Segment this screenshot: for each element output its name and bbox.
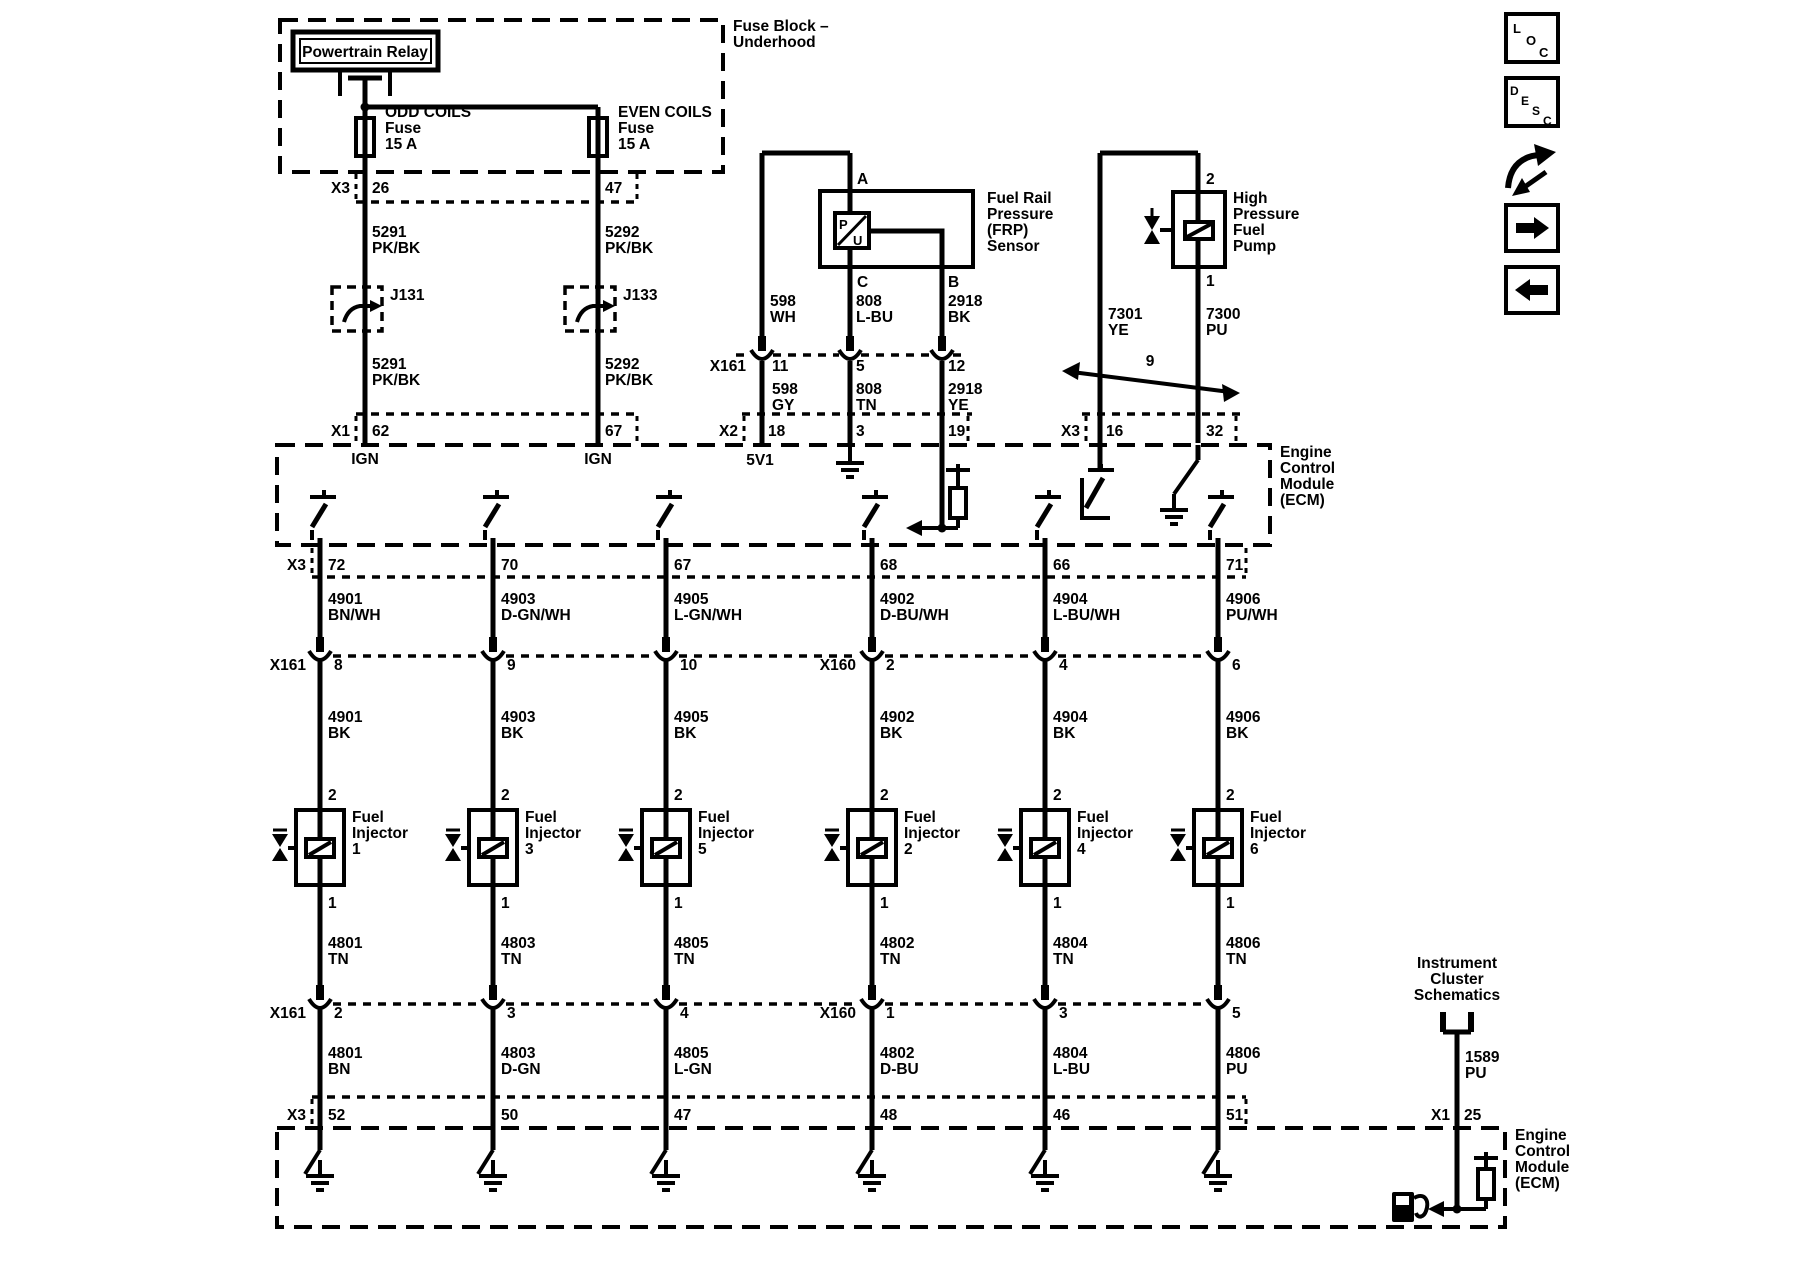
wire-number: 4904	[1053, 591, 1088, 608]
pin-number: 68	[880, 557, 898, 574]
pin-number: 5	[1232, 1005, 1241, 1022]
wire-number: 4804	[1053, 935, 1088, 952]
fuse-label: 15 A	[385, 136, 417, 153]
injector-column-2-labels: 70 4903 D-GN/WH 9 4903 BK 2 Fuel Injecto…	[501, 557, 581, 1124]
pin-number: 2	[1206, 171, 1215, 188]
wire-color: TN	[1053, 951, 1074, 968]
pin-number: 3	[507, 1005, 516, 1022]
fuse-label: EVEN COILS	[618, 104, 712, 121]
component-title: Pressure	[987, 206, 1054, 223]
component-title: Injector	[904, 825, 960, 842]
pin-number: 62	[372, 423, 389, 440]
wire-number: 4902	[880, 709, 914, 726]
connector-name: X161	[270, 1005, 307, 1022]
pin-number: 11	[772, 358, 789, 375]
pin-number: 1	[1226, 895, 1235, 912]
connector-x1-band: X1 62 67 IGN IGN	[331, 414, 640, 468]
wiring-diagram-page: Fuse Block – Underhood Powertrain Relay …	[0, 0, 1800, 1280]
wire-color: BK	[328, 725, 351, 742]
connector-name: X1	[331, 423, 350, 440]
wire-color: TN	[880, 951, 901, 968]
wire-number: 4803	[501, 935, 536, 952]
ecm-pump-driver	[1082, 445, 1114, 518]
pin-number: 2	[328, 787, 337, 804]
pin-number: 51	[1226, 1107, 1244, 1124]
pin-number: 1	[1053, 895, 1062, 912]
reference-title: Instrument	[1417, 955, 1497, 972]
fuel-pump-indicator-icon	[1392, 1192, 1427, 1222]
wire-color: TN	[501, 951, 522, 968]
odd-coils-fuse: ODD COILS Fuse 15 A	[356, 104, 471, 156]
wire-number: 4804	[1053, 1045, 1088, 1062]
wire-color: D-GN/WH	[501, 607, 571, 624]
desc-button[interactable]: D E S C	[1506, 78, 1558, 128]
wire-color: L-BU	[1053, 1061, 1090, 1078]
frp-sensor: P U A C B Fuel Rail Pressure (FRP) Senso…	[710, 153, 1054, 528]
pin-number: 6	[1232, 657, 1241, 674]
component-title: 1	[352, 841, 361, 858]
desc-icon: C	[1543, 114, 1552, 128]
ecm-outline	[277, 1128, 1505, 1227]
component-title: Fuel	[1077, 809, 1109, 826]
pin-number: 18	[768, 423, 786, 440]
pin-number: 66	[1053, 557, 1071, 574]
connector-x3-top-band: X3 26 47	[331, 174, 640, 202]
pin-number: 67	[605, 423, 622, 440]
pin-number: 70	[501, 557, 518, 574]
component-title: Injector	[525, 825, 581, 842]
ecm-label: Module	[1280, 476, 1335, 493]
wire-color: TN	[856, 397, 877, 414]
wire-number: 4906	[1226, 709, 1261, 726]
component-title: 3	[525, 841, 534, 858]
connector-x3-bottom-band: X3	[287, 1097, 1246, 1125]
wire-number: 598	[772, 381, 798, 398]
pin-number: 1	[674, 895, 683, 912]
wire-number: 598	[770, 293, 796, 310]
connector-name: X161	[270, 657, 307, 674]
offpage-connector-icon	[1443, 1012, 1471, 1032]
circuit-function: 5V1	[746, 452, 774, 469]
loc-icon: C	[1539, 45, 1549, 60]
pin-number: 1	[501, 895, 510, 912]
forward-button[interactable]	[1506, 205, 1558, 251]
pin-number: 67	[674, 557, 691, 574]
ecm-pump-ground	[1160, 445, 1198, 524]
wire-color: GY	[772, 397, 795, 414]
ecm-label: (ECM)	[1515, 1175, 1560, 1192]
pin-number: 12	[948, 358, 965, 375]
wire-color: WH	[770, 309, 796, 326]
pin-number: 4	[1059, 657, 1068, 674]
wire-number: 4905	[674, 591, 709, 608]
pin-number: 8	[334, 657, 343, 674]
pin-number: 47	[674, 1107, 691, 1124]
crossover-ref: 9	[1146, 353, 1155, 370]
connector-name: X2	[719, 423, 738, 440]
reference-title: Cluster	[1430, 971, 1483, 988]
wire-color: BN/WH	[328, 607, 381, 624]
desc-icon: S	[1532, 104, 1540, 118]
wire-number: 4801	[328, 935, 363, 952]
pin-number: 72	[328, 557, 345, 574]
injector-column-3-labels: 67 4905 L-GN/WH 10 4905 BK 2 Fuel Inject…	[674, 557, 754, 1124]
wire-number: 4906	[1226, 591, 1261, 608]
connector-name: X160	[820, 657, 856, 674]
instrument-cluster-link: Instrument Cluster Schematics 1589 PU X1…	[1392, 955, 1500, 1222]
jump-to-icon	[1508, 144, 1556, 196]
wire-color: YE	[948, 397, 969, 414]
wire-number: 5292	[605, 224, 639, 241]
even-coils-fuse: EVEN COILS Fuse 15 A	[589, 104, 712, 156]
back-button[interactable]	[1506, 267, 1558, 313]
wire-color: TN	[674, 951, 695, 968]
pin-number: 2	[674, 787, 683, 804]
coil-feed-wires: 5291 PK/BK 5292 PK/BK J131 J133 5291 PK/…	[332, 224, 658, 389]
jump-to-button[interactable]	[1508, 144, 1556, 196]
wire-number: 4805	[674, 935, 709, 952]
pin-number: 26	[372, 180, 390, 197]
pin-number: 4	[680, 1005, 689, 1022]
wire-color: PK/BK	[605, 240, 654, 257]
pin-number: 2	[1053, 787, 1062, 804]
wire-color: BN	[328, 1061, 350, 1078]
circuit-function: IGN	[584, 451, 612, 468]
splice-label: J131	[390, 287, 425, 304]
component-title: Fuel	[904, 809, 936, 826]
fuse-block-title: Fuse Block –	[733, 18, 829, 35]
wire-color: L-BU	[856, 309, 893, 326]
wire-number: 4904	[1053, 709, 1088, 726]
pin-number: 2	[886, 657, 895, 674]
pin-number: 2	[1226, 787, 1235, 804]
pin-number: 1	[886, 1005, 895, 1022]
wire-color: PU	[1226, 1061, 1248, 1078]
wire-number: 808	[856, 381, 882, 398]
pin-number: 48	[880, 1107, 898, 1124]
wire-color: D-GN	[501, 1061, 541, 1078]
component-title: Fuel	[352, 809, 384, 826]
component-title: Fuel Rail	[987, 190, 1052, 207]
fuse-label: ODD COILS	[385, 104, 471, 121]
pin-number: 19	[948, 423, 966, 440]
component-title: Pressure	[1233, 206, 1300, 223]
wire-color: BK	[501, 725, 524, 742]
wire-number: 808	[856, 293, 882, 310]
injector-column-1-labels: 72 4901 BN/WH 8 4901 BK 2 Fuel Injector …	[328, 557, 408, 1124]
pin-number: 10	[680, 657, 697, 674]
splice-label: J133	[623, 287, 658, 304]
wire-color: BK	[948, 309, 971, 326]
splice-j131	[332, 287, 382, 331]
component-title: High	[1233, 190, 1267, 207]
crossover-arrow-icon: 9	[1062, 353, 1240, 402]
wire-number: 4802	[880, 935, 914, 952]
ecm-top-box: Engine Control Module (ECM)	[277, 444, 1335, 545]
wire-number: 5291	[372, 356, 407, 373]
wire-number: 2918	[948, 293, 983, 310]
pin-number: 1	[880, 895, 889, 912]
wire-color: YE	[1108, 322, 1129, 339]
circuit-function: IGN	[351, 451, 379, 468]
wire-number: 4802	[880, 1045, 914, 1062]
component-title: 4	[1077, 841, 1086, 858]
ecm-label: (ECM)	[1280, 492, 1325, 509]
fuse-label: 15 A	[618, 136, 650, 153]
connector-name: X161	[710, 358, 747, 375]
injector-column-6-labels: 71 4906 PU/WH 6 4906 BK 2 Fuel Injector …	[1226, 557, 1306, 1124]
component-title: 5	[698, 841, 707, 858]
connector-name: X160	[820, 1005, 856, 1022]
wire-color: BK	[674, 725, 697, 742]
pin-number: 47	[605, 180, 622, 197]
high-pressure-fuel-pump: 2 1 High Pressure Fuel Pump 7301 YE 7300…	[1061, 153, 1300, 443]
pin-number: 2	[334, 1005, 343, 1022]
wire-color: PU	[1465, 1065, 1487, 1082]
pin-number: 2	[880, 787, 889, 804]
desc-icon: D	[1510, 84, 1519, 98]
component-title: (FRP)	[987, 222, 1028, 239]
pin-letter: C	[857, 274, 868, 291]
ecm-label: Engine	[1280, 444, 1332, 461]
pin-number: 2	[501, 787, 510, 804]
connector-name: X1	[1431, 1107, 1450, 1124]
ecm-label: Module	[1515, 1159, 1570, 1176]
reference-title: Schematics	[1414, 987, 1500, 1004]
component-title: Fuel	[525, 809, 557, 826]
wire-number: 4901	[328, 709, 363, 726]
injector-column-5-labels: 66 4904 L-BU/WH 4 4904 BK 2 Fuel Injecto…	[1053, 557, 1133, 1124]
component-title: Injector	[698, 825, 754, 842]
loc-icon: O	[1526, 33, 1536, 48]
wire-number: 7300	[1206, 306, 1240, 323]
fuse-block-underhood: Fuse Block – Underhood Powertrain Relay …	[280, 18, 829, 445]
fuel-injector-wiring-schematic: Fuse Block – Underhood Powertrain Relay …	[0, 0, 1800, 1280]
wire-number: 4902	[880, 591, 914, 608]
pin-number: 16	[1106, 423, 1124, 440]
connector-name: X3	[331, 180, 350, 197]
splice-j133	[565, 287, 615, 331]
ecm-pullup-resistor	[906, 464, 970, 536]
connector-name: X3	[287, 557, 306, 574]
pin-number: 46	[1053, 1107, 1071, 1124]
component-title: Pump	[1233, 238, 1276, 255]
loc-icon: L	[1513, 21, 1521, 36]
pin-letter: B	[948, 274, 959, 291]
ecm-label: Control	[1280, 460, 1335, 477]
component-title: Injector	[1250, 825, 1306, 842]
pin-number: 5	[856, 358, 865, 375]
component-title: 2	[904, 841, 913, 858]
wire-color: L-BU/WH	[1053, 607, 1120, 624]
wire-color: L-GN/WH	[674, 607, 742, 624]
wire-color: BK	[880, 725, 903, 742]
wire-number: 1589	[1465, 1049, 1500, 1066]
wire-number: 5291	[372, 224, 407, 241]
wire-color: BK	[1226, 725, 1249, 742]
wire-number: 4905	[674, 709, 709, 726]
ecm-label: Engine	[1515, 1127, 1567, 1144]
wire-color: PU	[1206, 322, 1228, 339]
connector-name: X3	[1061, 423, 1080, 440]
component-title: Sensor	[987, 238, 1040, 255]
connector-name: X3	[287, 1107, 306, 1124]
pin-number: 71	[1226, 557, 1244, 574]
pin-number: 1	[328, 895, 337, 912]
pin-number: 52	[328, 1107, 345, 1124]
wire-number: 4806	[1226, 1045, 1261, 1062]
fuse-block-title: Underhood	[733, 34, 816, 51]
wire-number: 2918	[948, 381, 983, 398]
pin-letter: A	[857, 171, 868, 188]
wire-color: PK/BK	[372, 240, 421, 257]
junction-dot	[361, 103, 370, 112]
pin-number: 3	[856, 423, 865, 440]
component-title: Injector	[352, 825, 408, 842]
ecm-bottom-box: Engine Control Module (ECM)	[277, 1127, 1570, 1227]
wire-color: D-BU	[880, 1061, 919, 1078]
wire-number: 4803	[501, 1045, 536, 1062]
loc-button[interactable]: L O C	[1506, 14, 1558, 62]
wire-number: 4903	[501, 709, 536, 726]
component-title: Fuel	[1250, 809, 1282, 826]
component-title: Fuel	[698, 809, 730, 826]
wire-number: 4903	[501, 591, 536, 608]
wire-color: L-GN	[674, 1061, 712, 1078]
wire-color: TN	[328, 951, 349, 968]
connector-x3-injector-band: X3	[287, 548, 1246, 577]
wire-color: PK/BK	[372, 372, 421, 389]
wire-color: PK/BK	[605, 372, 654, 389]
component-title: 6	[1250, 841, 1259, 858]
desc-icon: E	[1521, 94, 1529, 108]
wire-number: 4805	[674, 1045, 709, 1062]
wire-number: 5292	[605, 356, 639, 373]
ecm-label: Control	[1515, 1143, 1570, 1160]
ecm-fuel-signal-resistor	[1428, 1152, 1498, 1217]
wire-color: BK	[1053, 725, 1076, 742]
wire-color: D-BU/WH	[880, 607, 949, 624]
symbol-letter: U	[853, 233, 862, 248]
toolbar: L O C D E S C	[1506, 14, 1558, 313]
wire-number: 4901	[328, 591, 363, 608]
pin-number: 3	[1059, 1005, 1068, 1022]
wire-color: PU/WH	[1226, 607, 1278, 624]
component-title: Injector	[1077, 825, 1133, 842]
fuse-label: Fuse	[385, 120, 422, 137]
fuse-label: Fuse	[618, 120, 655, 137]
relay-label: Powertrain Relay	[302, 44, 428, 61]
pin-number: 9	[507, 657, 516, 674]
wire-color: TN	[1226, 951, 1247, 968]
wire-number: 4801	[328, 1045, 363, 1062]
pin-number: 50	[501, 1107, 518, 1124]
pin-number: 1	[1206, 273, 1215, 290]
component-title: Fuel	[1233, 222, 1265, 239]
wire-number: 7301	[1108, 306, 1143, 323]
pin-number: 25	[1464, 1107, 1482, 1124]
symbol-letter: P	[839, 217, 848, 232]
pin-number: 32	[1206, 423, 1223, 440]
injector-column-4-labels: 68 4902 D-BU/WH 2 4902 BK 2 Fuel Injecto…	[880, 557, 960, 1124]
wire-number: 4806	[1226, 935, 1261, 952]
